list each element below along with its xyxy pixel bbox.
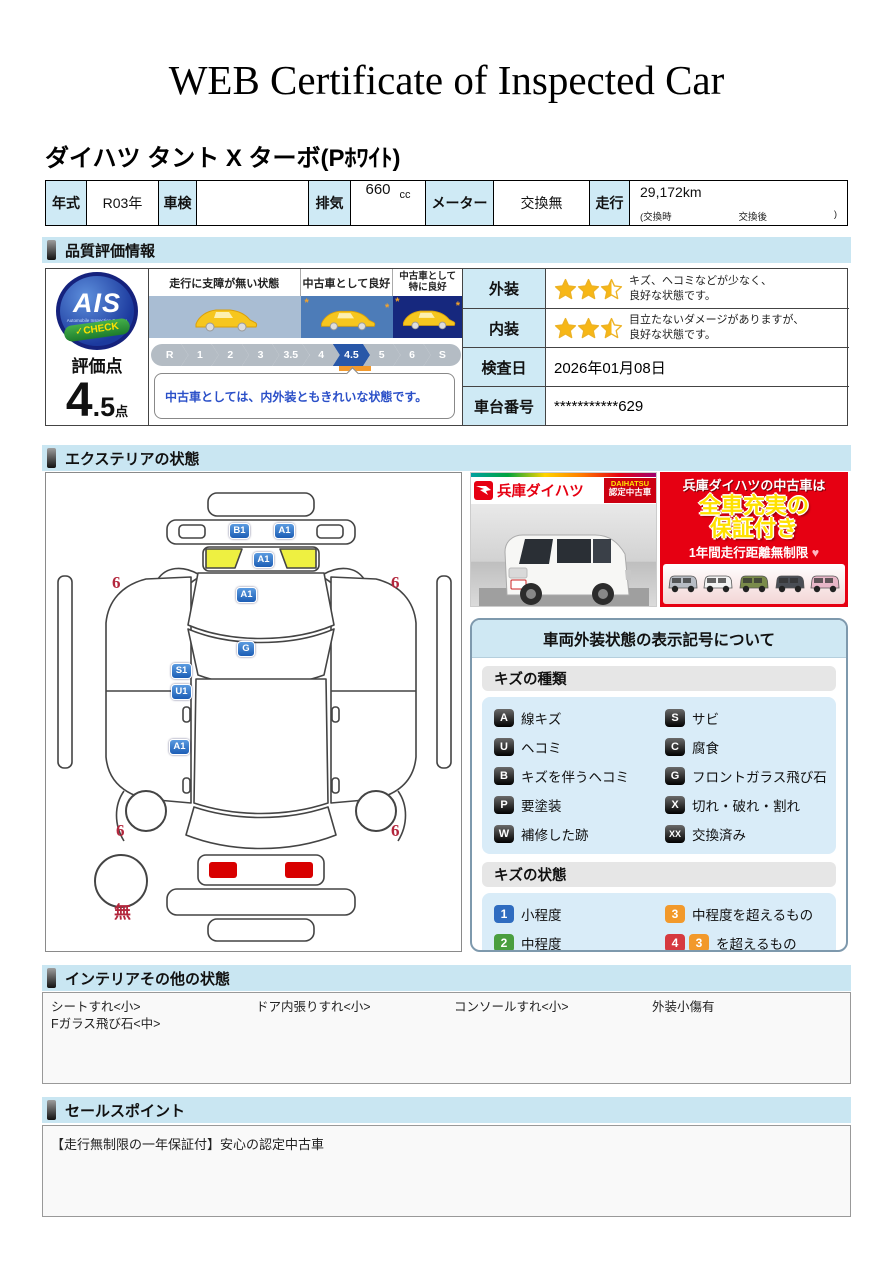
white-car-illustration xyxy=(479,510,649,607)
zone-band-2: * * xyxy=(301,296,394,338)
promo-line2: 全車充実の xyxy=(660,494,848,517)
vehicle-photo xyxy=(471,504,656,607)
star-icon xyxy=(577,317,600,339)
grade-scale-cell: 走行に支障が無い状態 中古車として良好 中古車として 特に良好 * * xyxy=(149,269,463,425)
grade-tick-R: R xyxy=(151,344,188,366)
section-tab xyxy=(47,240,56,260)
warranty-promo-banner: 兵庫ダイハツの中古車は 全車充実の 保証付き 1年間走行距離無制限 ♥ xyxy=(660,472,848,607)
kind-badge-B: B xyxy=(494,767,514,785)
certificate-page: WEB Certificate of Inspected Car ダイハツ タン… xyxy=(0,0,893,1263)
interior-item: ドア内張りすれ<小> xyxy=(256,999,454,1016)
star-icon xyxy=(600,278,623,300)
car-damage-diagram: B1A1A1A1GS1U1A16666無 xyxy=(45,472,462,952)
grade-scale: R1233.544.556S xyxy=(151,344,461,366)
lineup-car-icon xyxy=(667,574,699,594)
quality-table: AIS Automobile Inspection System ✓CHECK … xyxy=(45,268,848,426)
heart-icon: ♥ xyxy=(812,546,819,560)
vin-value: ***********629 xyxy=(546,387,849,425)
ais-logo: AIS Automobile Inspection System ✓CHECK xyxy=(56,272,138,350)
shaken-label: 車検 xyxy=(159,181,197,225)
promo-line3: 保証付き xyxy=(660,517,848,540)
inspection-date-label: 検査日 xyxy=(463,348,546,387)
vin-label: 車台番号 xyxy=(463,387,546,425)
sales-point-text: 【走行無制限の一年保証付】安心の認定中古車 xyxy=(43,1126,850,1153)
damage-marker-B1: B1 xyxy=(229,523,250,539)
page-title: WEB Certificate of Inspected Car xyxy=(0,56,893,104)
red-label-無: 無 xyxy=(114,898,131,923)
red-label-6: 6 xyxy=(391,821,400,841)
damage-kind-W: W補修した跡 xyxy=(494,819,665,848)
damage-state-title: キズの状態 xyxy=(482,862,836,887)
sales-point-box: 【走行無制限の一年保証付】安心の認定中古車 xyxy=(42,1125,851,1217)
grade-comment-box: 中古車としては、内外装ともきれいな状態です。 xyxy=(154,373,455,419)
year-label: 年式 xyxy=(46,181,87,225)
damage-kind-list: A線キズSサビUヘコミC腐食Bキズを伴うヘコミGフロントガラス飛び石P要塗装X切… xyxy=(482,697,836,854)
section-header-interior: インテリアその他の状態 xyxy=(42,965,851,991)
mileage-label: 走行 xyxy=(590,181,630,225)
damage-marker-A1: A1 xyxy=(253,552,274,568)
damage-kind-S: Sサビ xyxy=(665,703,836,732)
interior-rating-label: 内装 xyxy=(463,309,546,348)
car-icon xyxy=(318,304,376,331)
inspection-date-value: 2026年01月08日 xyxy=(546,348,849,387)
exterior-stars xyxy=(554,278,623,300)
section-header-exterior: エクステリアの状態 xyxy=(42,445,851,471)
kind-badge-U: U xyxy=(494,738,514,756)
mileage-note: (交換時 交換後 ) xyxy=(640,209,839,223)
mileage-value: 29,172km (交換時 交換後 ) xyxy=(630,181,847,225)
kind-badge-XX: XX xyxy=(665,825,685,843)
grade-zone-labels: 走行に支障が無い状態 中古車として良好 中古車として 特に良好 xyxy=(149,269,462,296)
score-value: 4 .5 点 xyxy=(66,377,128,425)
promo-line1: 兵庫ダイハツの中古車は xyxy=(660,475,848,494)
vehicle-name: ダイハツ タント X ターボ(Pﾎﾜｲﾄ) xyxy=(45,138,401,173)
daihatsu-logo-icon xyxy=(474,481,493,500)
lineup-car-icon xyxy=(702,574,734,594)
damage-kind-XX: XX交換済み xyxy=(665,819,836,848)
exterior-rating-label: 外装 xyxy=(463,269,546,309)
interior-item: シートすれ<小> xyxy=(51,999,256,1016)
interior-condition-box: シートすれ<小>ドア内張りすれ<小>コンソールすれ<小>外装小傷有Fガラス飛び石… xyxy=(42,992,851,1084)
damage-kind-title: キズの種類 xyxy=(482,666,836,691)
damage-state-list: 1小程度3中程度を超えるもの2中程度43を超えるもの xyxy=(482,893,836,952)
damage-marker-U1: U1 xyxy=(171,684,192,700)
exterior-rating-value: キズ、ヘコミなどが少なく、 良好な状態です。 xyxy=(546,269,849,309)
certified-badge: DAIHATSU 認定中古車 xyxy=(604,478,656,503)
state-badge-3: 3 xyxy=(689,934,709,952)
star-icon xyxy=(577,278,600,300)
zone-band-3: * * xyxy=(393,296,462,338)
interior-item-list: シートすれ<小>ドア内張りすれ<小>コンソールすれ<小>外装小傷有Fガラス飛び石… xyxy=(43,993,850,1033)
kind-badge-A: A xyxy=(494,709,514,727)
car-lineup-strip xyxy=(663,564,845,604)
car-icon xyxy=(400,304,456,330)
damage-kind-X: X切れ・破れ・割れ xyxy=(665,790,836,819)
vehicle-info-table: 年式 R03年 車検 排気 660 cc メーター 交換無 走行 29,172k… xyxy=(45,180,848,226)
ais-score-cell: AIS Automobile Inspection System ✓CHECK … xyxy=(46,269,149,425)
damage-legend: 車両外装状態の表示記号について キズの種類 A線キズSサビUヘコミC腐食Bキズを… xyxy=(470,618,848,952)
interior-item: 外装小傷有 xyxy=(652,999,850,1016)
damage-marker-A1: A1 xyxy=(169,739,190,755)
damage-kind-A: A線キズ xyxy=(494,703,665,732)
star-icon xyxy=(554,278,577,300)
damage-marker-S1: S1 xyxy=(171,663,192,679)
section-header-sales: セールスポイント xyxy=(42,1097,851,1123)
damage-kind-P: P要塗装 xyxy=(494,790,665,819)
damage-state-43: 43を超えるもの xyxy=(665,928,836,952)
kind-badge-P: P xyxy=(494,796,514,814)
damage-state-2: 2中程度 xyxy=(494,928,665,952)
meter-value: 交換無 xyxy=(494,181,590,225)
displacement-label: 排気 xyxy=(309,181,351,225)
dealer-photo-banner: 兵庫ダイハツ DAIHATSU 認定中古車 xyxy=(470,472,657,607)
damage-kind-U: Uヘコミ xyxy=(494,732,665,761)
promo-line4: 1年間走行距離無制限 ♥ xyxy=(660,542,848,561)
legend-title: 車両外装状態の表示記号について xyxy=(472,620,846,658)
damage-kind-C: C腐食 xyxy=(665,732,836,761)
red-label-6: 6 xyxy=(116,821,125,841)
interior-item: Fガラス飛び石<中> xyxy=(51,1016,256,1033)
meter-label: メーター xyxy=(426,181,494,225)
state-badge-2: 2 xyxy=(494,934,514,952)
damage-marker-G: G xyxy=(237,641,255,657)
state-badge-3: 3 xyxy=(665,905,685,923)
lineup-car-icon xyxy=(738,574,770,594)
lineup-car-icon xyxy=(774,574,806,594)
dealer-header: 兵庫ダイハツ DAIHATSU 認定中古車 xyxy=(471,477,656,504)
grade-zone-bands: * * * * xyxy=(149,296,462,338)
interior-item: コンソールすれ<小> xyxy=(454,999,652,1016)
section-tab xyxy=(47,968,56,988)
car-icon xyxy=(192,302,258,332)
interior-rating-value: 目立たないダメージがありますが、 良好な状態です。 xyxy=(546,309,849,348)
kind-badge-X: X xyxy=(665,796,685,814)
shaken-value xyxy=(197,181,309,225)
state-badge-1: 1 xyxy=(494,905,514,923)
displacement-number: 660 xyxy=(365,181,390,198)
star-icon xyxy=(554,317,577,339)
section-tab xyxy=(47,1100,56,1120)
star-icon xyxy=(600,317,623,339)
damage-kind-G: Gフロントガラス飛び石 xyxy=(665,761,836,790)
red-label-6: 6 xyxy=(391,573,400,593)
damage-state-1: 1小程度 xyxy=(494,899,665,928)
kind-badge-W: W xyxy=(494,825,514,843)
section-tab xyxy=(47,448,56,468)
section-header-quality: 品質評価情報 xyxy=(42,237,851,263)
interior-stars xyxy=(554,317,623,339)
displacement-value: 660 cc xyxy=(351,181,426,225)
displacement-unit: cc xyxy=(400,189,411,201)
damage-marker-A1: A1 xyxy=(274,523,295,539)
kind-badge-S: S xyxy=(665,709,685,727)
red-label-6: 6 xyxy=(112,573,121,593)
damage-marker-A1: A1 xyxy=(236,587,257,603)
mileage-number: 29,172km xyxy=(640,184,839,200)
kind-badge-G: G xyxy=(665,767,685,785)
state-badge-4: 4 xyxy=(665,934,685,952)
lineup-car-icon xyxy=(809,574,841,594)
damage-state-3: 3中程度を超えるもの xyxy=(665,899,836,928)
dealer-name: 兵庫ダイハツ xyxy=(497,480,604,501)
car-outline xyxy=(46,473,463,953)
year-value: R03年 xyxy=(87,181,159,225)
damage-kind-B: Bキズを伴うヘコミ xyxy=(494,761,665,790)
kind-badge-C: C xyxy=(665,738,685,756)
zone-band-1 xyxy=(149,296,301,338)
